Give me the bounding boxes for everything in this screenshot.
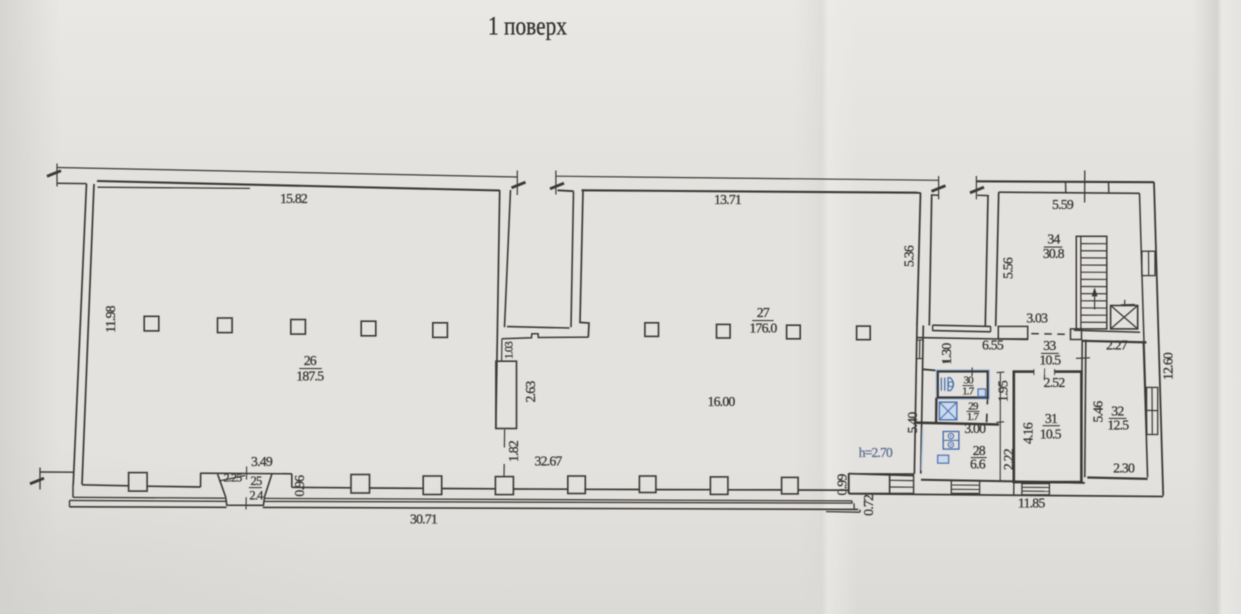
svg-text:h=2.70: h=2.70 bbox=[859, 445, 893, 460]
svg-text:6.6: 6.6 bbox=[970, 457, 986, 472]
svg-text:10.5: 10.5 bbox=[1039, 353, 1061, 368]
svg-text:12.5: 12.5 bbox=[1107, 417, 1129, 432]
svg-text:1 поверх: 1 поверх bbox=[488, 12, 567, 41]
svg-text:13.71: 13.71 bbox=[714, 192, 742, 207]
svg-text:30.8: 30.8 bbox=[1043, 246, 1065, 261]
svg-text:3.49: 3.49 bbox=[251, 454, 273, 469]
svg-text:4.16: 4.16 bbox=[1021, 422, 1036, 444]
svg-text:16.00: 16.00 bbox=[707, 394, 735, 409]
svg-text:5.59: 5.59 bbox=[1052, 197, 1074, 212]
svg-text:15.82: 15.82 bbox=[280, 191, 308, 206]
svg-text:34: 34 bbox=[1047, 232, 1060, 247]
svg-text:5.36: 5.36 bbox=[902, 245, 917, 267]
svg-text:0.99: 0.99 bbox=[834, 474, 849, 496]
svg-text:6.55: 6.55 bbox=[982, 338, 1004, 353]
svg-text:1.7: 1.7 bbox=[962, 386, 975, 398]
svg-text:3.03: 3.03 bbox=[1026, 310, 1048, 325]
svg-text:2.30: 2.30 bbox=[1113, 461, 1135, 476]
svg-text:187.5: 187.5 bbox=[296, 368, 324, 383]
svg-text:2.22: 2.22 bbox=[1001, 448, 1016, 470]
svg-text:3.00: 3.00 bbox=[964, 421, 986, 436]
svg-text:10.5: 10.5 bbox=[1040, 426, 1062, 441]
svg-text:27: 27 bbox=[757, 305, 770, 320]
svg-text:11.85: 11.85 bbox=[1018, 496, 1045, 511]
svg-text:26: 26 bbox=[304, 353, 317, 368]
svg-text:2.4: 2.4 bbox=[249, 489, 264, 503]
svg-text:30.71: 30.71 bbox=[410, 512, 438, 527]
svg-text:0.72: 0.72 bbox=[861, 494, 876, 516]
svg-text:1.82: 1.82 bbox=[506, 440, 521, 462]
svg-text:5.56: 5.56 bbox=[1000, 257, 1015, 279]
svg-text:5.46: 5.46 bbox=[1090, 401, 1105, 423]
svg-text:11.98: 11.98 bbox=[103, 305, 118, 332]
svg-text:32.67: 32.67 bbox=[534, 454, 562, 469]
svg-text:1.03: 1.03 bbox=[503, 341, 515, 359]
svg-text:2.27: 2.27 bbox=[1106, 337, 1128, 352]
svg-text:25: 25 bbox=[251, 474, 262, 488]
svg-text:176.0: 176.0 bbox=[749, 321, 777, 336]
svg-text:2.52: 2.52 bbox=[1044, 375, 1066, 390]
svg-text:33: 33 bbox=[1043, 338, 1056, 353]
svg-text:1.95: 1.95 bbox=[995, 380, 1010, 402]
svg-text:2.63: 2.63 bbox=[523, 381, 538, 403]
svg-text:1.30: 1.30 bbox=[939, 343, 954, 365]
svg-text:0.96: 0.96 bbox=[292, 475, 307, 497]
svg-text:31: 31 bbox=[1045, 411, 1058, 426]
svg-text:12.60: 12.60 bbox=[1160, 352, 1175, 380]
